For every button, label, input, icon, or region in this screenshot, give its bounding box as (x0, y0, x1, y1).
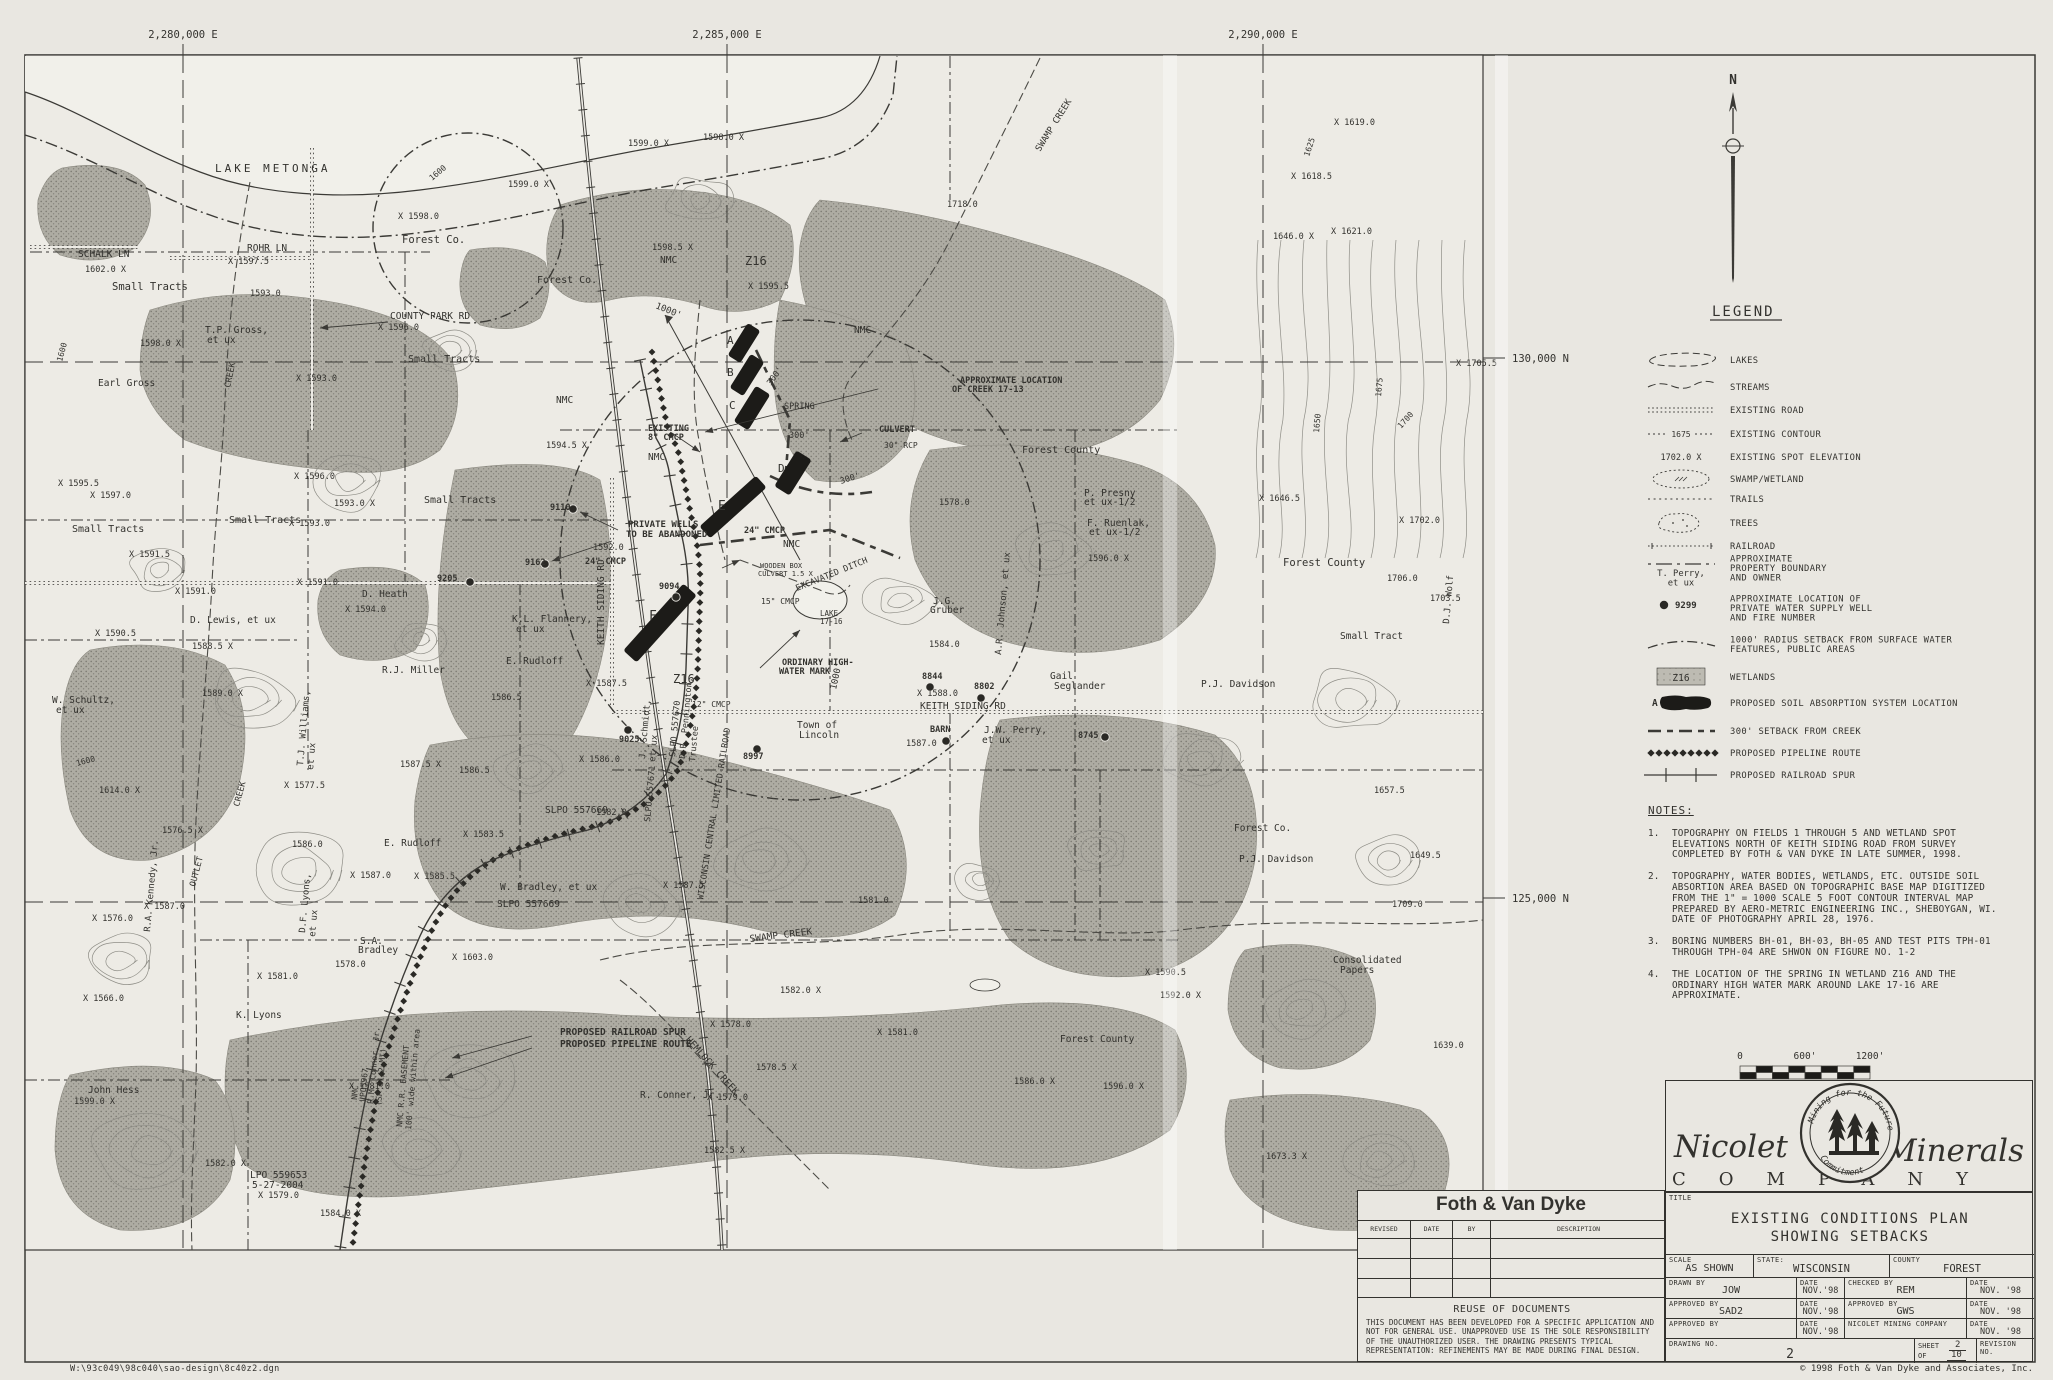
company-block: Nicolet Minerals COMPANY Mining for the … (1665, 1080, 2033, 1192)
map-label: 1602.0 X (85, 265, 127, 275)
legend-label: APPROXIMATE LOCATION OF (1730, 595, 1861, 605)
map-label: 1586.0 X (1014, 1077, 1056, 1087)
company-cell-label: NICOLET MINING COMPANY (1848, 1320, 1947, 1328)
scale-bar-segment (1756, 1073, 1772, 1080)
map-label: 1593.0 (250, 289, 281, 299)
legend-label: FEATURES, PUBLIC AREAS (1730, 645, 1855, 655)
legend-label: TRAILS (1730, 495, 1764, 505)
map-label: NMC (556, 395, 573, 406)
map-label: 30" RCP (884, 441, 918, 450)
date-value: NOV.'98 (1797, 1286, 1844, 1296)
map-label: Bradley (358, 945, 398, 956)
fold-crease (1163, 55, 1177, 1250)
property-symbol-text: et ux (1668, 579, 1694, 589)
map-label: D (778, 462, 785, 475)
map-label: KEITH SIDING RD (596, 559, 607, 645)
note-item: 1.TOPOGRAPHY ON FIELDS 1 THROUGH 5 AND W… (1648, 829, 2000, 861)
legend-label: TREES (1730, 519, 1758, 529)
map-label: 1598.0 X (703, 133, 745, 143)
map-label: 1673.3 X (1266, 1152, 1308, 1162)
legend-label: PROPOSED SOIL ABSORPTION SYSTEM LOCATION (1730, 699, 1958, 709)
map-label: TO BE ABANDONED (626, 530, 708, 540)
company-name-right: Minerals (1885, 1133, 2024, 1169)
map-label: 8" CMCP (648, 433, 684, 443)
map-label: 1582.0 (596, 808, 627, 818)
map-label: B (727, 366, 734, 379)
map-label: 5-27-2004 (252, 1180, 304, 1191)
map-label: PROPOSED RAILROAD SPUR (560, 1027, 686, 1038)
scale-bar-segment (1773, 1073, 1789, 1080)
date-value: NOV.'98 (1797, 1327, 1844, 1337)
map-label: 1578.0 (939, 498, 970, 508)
map-label: 9110 (550, 503, 570, 513)
map-label: 8997 (743, 752, 763, 762)
map-label: X 1597.0 (90, 491, 131, 501)
map-label: X 1591.0 (175, 587, 216, 597)
map-label: Gruber (930, 605, 965, 616)
map-label: 1599.0 X (74, 1097, 116, 1107)
drawn-by-value: JOW (1666, 1285, 1796, 1296)
map-label: et ux (207, 335, 236, 346)
forest-area (38, 165, 151, 260)
map-label: 1584.0 (929, 640, 960, 650)
map-label: COUNTY PARK RD (390, 311, 470, 322)
legend-label: AND OWNER (1730, 574, 1782, 584)
map-label: X 1594.0 (345, 605, 386, 615)
legend-label: EXISTING CONTOUR (1730, 430, 1821, 440)
map-label: P.J. Davidson (1239, 854, 1313, 865)
date-cell: DATE NOV. '98 (1966, 1277, 2034, 1298)
map-label: X 1587.0 (144, 902, 185, 912)
map-label: OF CREEK 17-13 (952, 385, 1024, 395)
scale-bar-segment (1756, 1066, 1772, 1073)
legend-label: EXISTING ROAD (1730, 406, 1804, 416)
well-symbol-icon (1660, 601, 1668, 609)
county-value: FOREST (1890, 1263, 2034, 1275)
map-label: 24" CMCP (744, 526, 785, 536)
railroad-tie (714, 1193, 723, 1194)
map-label: F (649, 609, 657, 624)
map-label: W. Bradley, et ux (500, 882, 598, 893)
scale-bar-segment (1838, 1073, 1854, 1080)
map-label: C (729, 399, 736, 412)
scale-bar-segment (1854, 1066, 1870, 1073)
approved-by-cell: APPROVED BY (1666, 1318, 1796, 1338)
legend-label: WETLANDS (1730, 673, 1776, 683)
map-label: X 1621.0 (1331, 227, 1372, 237)
map-label: X 1619.0 (1334, 118, 1375, 128)
spot-symbol-text: 1702.0 X (1661, 453, 1703, 463)
map-label: 1598.5 X (652, 243, 694, 253)
legend-label: PROPERTY BOUNDARY (1730, 564, 1827, 574)
map-label: Forest County (1060, 1034, 1135, 1045)
map-label: X 1705.5 (1456, 359, 1497, 369)
map-label: Lincoln (799, 730, 839, 741)
map-label: 12" CMCP (692, 700, 731, 709)
notes-list: 1.TOPOGRAPHY ON FIELDS 1 THROUGH 5 AND W… (1648, 829, 2000, 1002)
map-label: E. Rudloff (384, 838, 441, 849)
approved-by-value: GWS (1845, 1306, 1966, 1317)
reuse-text: THIS DOCUMENT HAS BEEN DEVELOPED FOR A S… (1366, 1318, 1658, 1355)
scale-bar-segment (1821, 1066, 1837, 1073)
revision-label: REVISION NO. (1980, 1340, 2034, 1356)
reuse-title: REUSE OF DOCUMENTS (1358, 1304, 1666, 1315)
date-value: NOV. '98 (1967, 1327, 2034, 1337)
map-label: X 1646.5 (1259, 494, 1300, 504)
map-label: X 1576.0 (92, 914, 133, 924)
legend-label: STREAMS (1730, 383, 1770, 393)
well-marker (466, 578, 474, 586)
sheet-cell: SHEET 2 OF 10 (1914, 1338, 1976, 1363)
map-label: E. Rudloff (506, 656, 563, 667)
note-number: 4. (1648, 970, 1672, 1002)
property-symbol-text: T. Perry, (1657, 569, 1705, 579)
date-value: NOV.'98 (1797, 1307, 1844, 1317)
date-cell: DATE NOV.'98 (1796, 1277, 1844, 1298)
approved-by-label: APPROVED BY (1669, 1320, 1719, 1328)
map-label: D. Lewis, et ux (190, 615, 276, 626)
map-label: 1582.0 X (205, 1159, 247, 1169)
legend-label: PROPOSED RAILROAD SPUR (1730, 771, 1856, 781)
map-label: X 1595.5 (748, 282, 789, 292)
note-number: 1. (1648, 829, 1672, 861)
revision-col-date: DATE (1411, 1225, 1452, 1233)
map-label: 1599.0 X (508, 180, 550, 190)
map-label: 1639.0 (1433, 1041, 1464, 1051)
map-label: NMC (783, 539, 800, 550)
map-label: CULVERT 1.5 X (758, 570, 814, 578)
file-path: W:\93c049\98c040\sao-design\8c40z2.dgn (70, 1364, 280, 1374)
map-label: ROHR LN (247, 243, 287, 254)
map-label: X 1581.0 (257, 972, 298, 982)
forest-area (979, 715, 1256, 977)
pond (970, 979, 1000, 991)
legend-label: 1000' RADIUS SETBACK FROM SURFACE WATER (1730, 635, 1952, 645)
approved-by-value: SAD2 (1666, 1306, 1796, 1317)
foth-name: Foth & Van Dyke (1358, 1194, 1664, 1216)
map-label: 8745 (1078, 731, 1098, 741)
note-text: TOPOGRAPHY, WATER BODIES, WETLANDS, ETC.… (1672, 872, 2000, 926)
map-label: X 1596.0 (294, 472, 335, 482)
map-label: 8802 (974, 682, 994, 692)
map-label: 1596.0 X (1103, 1082, 1145, 1092)
well-marker (672, 593, 680, 601)
map-label: 1581.0 (858, 896, 889, 906)
map-label: et ux (516, 624, 545, 635)
map-label: 9162 (525, 558, 545, 568)
approved-by-cell: APPROVED BY GWS (1844, 1298, 1966, 1318)
map-label: X 1591.5 (129, 550, 170, 560)
company-name-left: Nicolet (1674, 1129, 1788, 1165)
note-item: 4.THE LOCATION OF THE SPRING IN WETLAND … (1648, 970, 2000, 1002)
map-label: Small Tracts (424, 495, 496, 506)
legend-label: SWAMP/WETLAND (1730, 475, 1804, 485)
map-label: 1586.0 (292, 840, 323, 850)
map-label: NMC (648, 452, 665, 463)
scale-bar-segment (1773, 1066, 1789, 1073)
legend-label: RAILROAD (1730, 542, 1776, 552)
map-label: X 1596.0 (378, 323, 419, 333)
map-label: X 1579.0 (258, 1191, 299, 1201)
north-arrow-n: N (1729, 73, 1737, 88)
scale-bar-label: 0 (1737, 1051, 1743, 1062)
map-label: 1596.0 X (1088, 554, 1130, 564)
map-label: Small Tracts (72, 524, 144, 535)
sheet-of-label: OF (1918, 1352, 1926, 1360)
map-label: et ux-1/2 (1089, 527, 1140, 538)
map-label: E (718, 499, 726, 514)
legend-item-spot: EXISTING SPOT ELEVATION1702.0 X (1661, 453, 1861, 463)
checked-by-cell: CHECKED BY REM (1844, 1277, 1966, 1298)
map-label: D. Heath (362, 589, 408, 600)
legend-label: APPROXIMATE (1730, 555, 1793, 565)
map-label: X 1577.5 (284, 781, 325, 791)
scale-bar-segment (1854, 1073, 1870, 1080)
legend-item-contour: EXISTING CONTOUR1675 (1648, 430, 1821, 440)
map-label: Z16 (745, 254, 767, 268)
map-label: X 1583.5 (463, 830, 504, 840)
well-marker (942, 737, 950, 745)
map-label: Papers (1340, 965, 1374, 976)
scale-bar-segment (1838, 1066, 1854, 1073)
note-text: BORING NUMBERS BH-01, BH-03, BH-05 AND T… (1672, 937, 2000, 959)
map-label: X 1578.0 (710, 1020, 751, 1030)
map-label: KEITH SIDING RD (920, 701, 1006, 712)
map-label: X 1590.5 (95, 629, 136, 639)
contour-symbol-text: 1675 (1671, 430, 1690, 439)
map-label: PRIVATE WELLS (628, 520, 698, 530)
date-cell: DATE NOV. '98 (1966, 1318, 2034, 1338)
map-label: 9094 (659, 582, 679, 592)
map-label: P.J. Davidson (1201, 679, 1275, 690)
map-label: 9025 (619, 735, 639, 745)
map-label: Forest County (1283, 557, 1365, 569)
map-label: X 1618.5 (1291, 172, 1332, 182)
date-value: NOV. '98 (1967, 1286, 2034, 1296)
map-label: X 1587.0 (350, 871, 391, 881)
map-label: CULVERT (879, 425, 915, 435)
scale-value: AS SHOWN (1666, 1263, 1753, 1274)
note-text: THE LOCATION OF THE SPRING IN WETLAND Z1… (1672, 970, 2000, 1002)
map-label: Forest County (1022, 445, 1100, 456)
legend-label: LAKES (1730, 356, 1758, 366)
map-label: LAKE METONGA (215, 162, 330, 175)
county-cell: COUNTY FOREST (1889, 1254, 2034, 1277)
map-label: 1650 (1312, 413, 1323, 433)
scale-bar-segment (1805, 1066, 1821, 1073)
map-label: Small Tracts (112, 281, 188, 293)
sheet-total: 10 (1947, 1350, 1966, 1361)
notes-title: NOTES: (1648, 806, 2000, 817)
revision-col-by: BY (1453, 1225, 1490, 1233)
scale-bar-segment (1805, 1073, 1821, 1080)
revision-col-description: DESCRIPTION (1491, 1225, 1666, 1233)
map-label: 1589.0 X (202, 689, 244, 699)
map-label: John Hess (88, 1085, 139, 1096)
map-label: SCHALK LN (78, 249, 130, 260)
wetland-symbol-text: Z16 (1672, 673, 1689, 684)
map-label: 1586.5 (459, 766, 490, 776)
map-label: X 1566.0 (83, 994, 124, 1004)
map-label: X 1591.0 (297, 578, 338, 588)
map-label: 300' (789, 431, 809, 441)
railroad-tie (716, 1219, 725, 1220)
map-label: 1594.5 X (546, 441, 588, 451)
map-label: R.J. Miller (382, 665, 445, 676)
map-label: et ux (56, 705, 85, 716)
map-label: 1718.0 (947, 200, 978, 210)
notes-panel: NOTES: 1.TOPOGRAPHY ON FIELDS 1 THROUGH … (1648, 806, 2000, 1013)
forest-area (55, 1066, 235, 1230)
map-label: Seglander (1054, 681, 1106, 692)
map-label: Forest Co. (402, 234, 465, 246)
map-label: WOODEN BOX (760, 562, 803, 570)
map-label: 1593.0 X (334, 499, 376, 509)
drawing-sheet: LAKE METONGASCHALK LN1602.0 XSmall Tract… (0, 0, 2053, 1380)
foth-block: Foth & Van Dyke REVISED DATE BY DESCRIPT… (1357, 1190, 1665, 1362)
state-cell: STATE: WISCONSIN (1753, 1254, 1889, 1277)
forest-area (460, 248, 549, 329)
easting-label: 2,285,000 E (692, 29, 762, 41)
map-label: NMC (854, 325, 871, 336)
map-label: 1592.0 (593, 543, 624, 553)
map-label: 1588.5 X (192, 642, 234, 652)
scale-bar-segment (1740, 1073, 1756, 1080)
map-label: 1576.5 X (162, 826, 204, 836)
easting-label: 2,290,000 E (1228, 29, 1298, 41)
map-label: Forest Co. (1234, 823, 1291, 834)
map-label: 17-16 (820, 617, 843, 626)
map-label: X 1702.0 (1399, 516, 1440, 526)
legend-label: AND FIRE NUMBER (1730, 614, 1816, 624)
northing-label: 130,000 N (1512, 353, 1569, 365)
note-item: 2.TOPOGRAPHY, WATER BODIES, WETLANDS, ET… (1648, 872, 2000, 926)
map-label: 1649.5 (1410, 851, 1441, 861)
northing-label: 125,000 N (1512, 893, 1569, 905)
map-label: 1614.0 X (99, 786, 141, 796)
map-label: K. Lyons (236, 1010, 282, 1021)
scale-cell: SCALE AS SHOWN (1666, 1254, 1753, 1277)
map-label: X 1587.5 (586, 679, 627, 689)
map-label: 1646.0 X (1273, 232, 1315, 242)
map-label: SPRING (784, 402, 815, 412)
approved-by-cell: APPROVED BY SAD2 (1666, 1298, 1796, 1318)
map-label: Small Tracts (408, 354, 480, 365)
legend-label: EXISTING SPOT ELEVATION (1730, 453, 1861, 463)
soil-symbol-text: A (1652, 698, 1658, 709)
scale-bar-label: 600' (1794, 1051, 1817, 1062)
legend-title: LEGEND (1712, 304, 1775, 320)
map-label: 1584.0 X (320, 1209, 362, 1219)
company-seal: Mining for the Future Commitment (1795, 1081, 1905, 1185)
map-label: X 1595.5 (58, 479, 99, 489)
revision-cell: REVISION NO. (1976, 1338, 2034, 1363)
map-label: 15" CMCP (761, 597, 800, 606)
map-label: BARN (930, 725, 950, 735)
drawing-no-value: 2 (1666, 1347, 1914, 1362)
map-label: X 1598.0 (398, 212, 439, 222)
fold-crease (1495, 55, 1508, 1362)
map-label: 1586.5 (491, 693, 522, 703)
map-label: X 1586.0 (579, 755, 620, 765)
map-label: X 1579.0 (707, 1093, 748, 1103)
drawing-title-line1: EXISTING CONDITIONS PLAN (1666, 1211, 2034, 1227)
map-label: 1657.5 (1374, 786, 1405, 796)
map-label: 1582.5 X (704, 1146, 746, 1156)
map-label: 1706.0 (1387, 574, 1418, 584)
scale-bar-segment (1740, 1066, 1756, 1073)
map-label: PROPOSED PIPELINE ROUTE (560, 1039, 692, 1050)
map-label: X 1585.5 (414, 872, 455, 882)
map-label: SLPO 557669 (497, 899, 560, 910)
sheet-label: SHEET (1918, 1342, 1939, 1350)
revision-table: REVISED DATE BY DESCRIPTION (1358, 1220, 1666, 1298)
map-label: 1587.5 X (400, 760, 442, 770)
map-label: 9205 (437, 574, 457, 584)
map-label: X 1597.5 (228, 257, 269, 267)
drawn-by-cell: DRAWN BY JOW (1666, 1277, 1796, 1298)
well-symbol-text: 9299 (1675, 601, 1697, 611)
map-label: X 1603.0 (452, 953, 493, 963)
date-cell: DATE NOV.'98 (1796, 1298, 1844, 1318)
legend-label: 300' SETBACK FROM CREEK (1730, 727, 1861, 737)
note-number: 2. (1648, 872, 1672, 926)
map-label: 1598.0 X (140, 339, 182, 349)
checked-by-value: REM (1845, 1285, 1966, 1296)
scale-bar-segment (1821, 1073, 1837, 1080)
map-label: 1587.0 (906, 739, 937, 749)
map-label: 1578.0 (335, 960, 366, 970)
date-value: NOV. '98 (1967, 1307, 2034, 1317)
revision-col-revised: REVISED (1358, 1225, 1410, 1233)
note-number: 3. (1648, 937, 1672, 959)
map-label: Earl Gross (98, 378, 155, 389)
company-cell: NICOLET MINING COMPANY (1844, 1318, 1966, 1338)
map-label: 1582.0 X (780, 986, 822, 996)
drawing-title-line2: SHOWING SETBACKS (1666, 1229, 2034, 1245)
date-cell: DATE NOV.'98 (1796, 1318, 1844, 1338)
map-label: et ux (982, 735, 1011, 746)
scale-bar-segment (1789, 1066, 1805, 1073)
map-label: 1578.5 X (756, 1063, 798, 1073)
railroad-tie (712, 1167, 721, 1168)
legend-label: PROPOSED PIPELINE ROUTE (1730, 749, 1861, 759)
title-label: TITLE (1669, 1194, 1692, 1202)
scale-bar-label: 1200' (1856, 1051, 1885, 1062)
drawing-no-cell: DRAWING NO. 2 (1666, 1338, 1914, 1363)
map-label: Small Tract (1340, 631, 1403, 642)
map-label: 1709.0 (1392, 900, 1423, 910)
well-marker (1101, 733, 1109, 741)
map-label: WATER MARK (779, 667, 831, 677)
legend-label: PRIVATE WATER SUPPLY WELL (1730, 604, 1872, 614)
soil-symbol-icon (1660, 696, 1711, 711)
well-marker (624, 726, 632, 734)
map-label: et ux-1/2 (1084, 497, 1135, 508)
reuse-section: REUSE OF DOCUMENTS THIS DOCUMENT HAS BEE… (1358, 1297, 1666, 1364)
copyright: © 1998 Foth & Van Dyke and Associates, I… (1683, 1364, 2033, 1374)
map-label: Small Tracts (229, 515, 301, 526)
map-label: X 1593.0 (296, 374, 337, 384)
state-value: WISCONSIN (1754, 1263, 1889, 1275)
easting-label: 2,280,000 E (148, 29, 218, 41)
map-label: 1599.0 X (628, 139, 670, 149)
map-label: NMC (660, 255, 677, 266)
map-label: 1675 (1374, 377, 1385, 397)
note-text: TOPOGRAPHY ON FIELDS 1 THROUGH 5 AND WET… (1672, 829, 2000, 861)
map-label: X 1581.0 (877, 1028, 918, 1038)
scale-bar-segment (1789, 1073, 1805, 1080)
